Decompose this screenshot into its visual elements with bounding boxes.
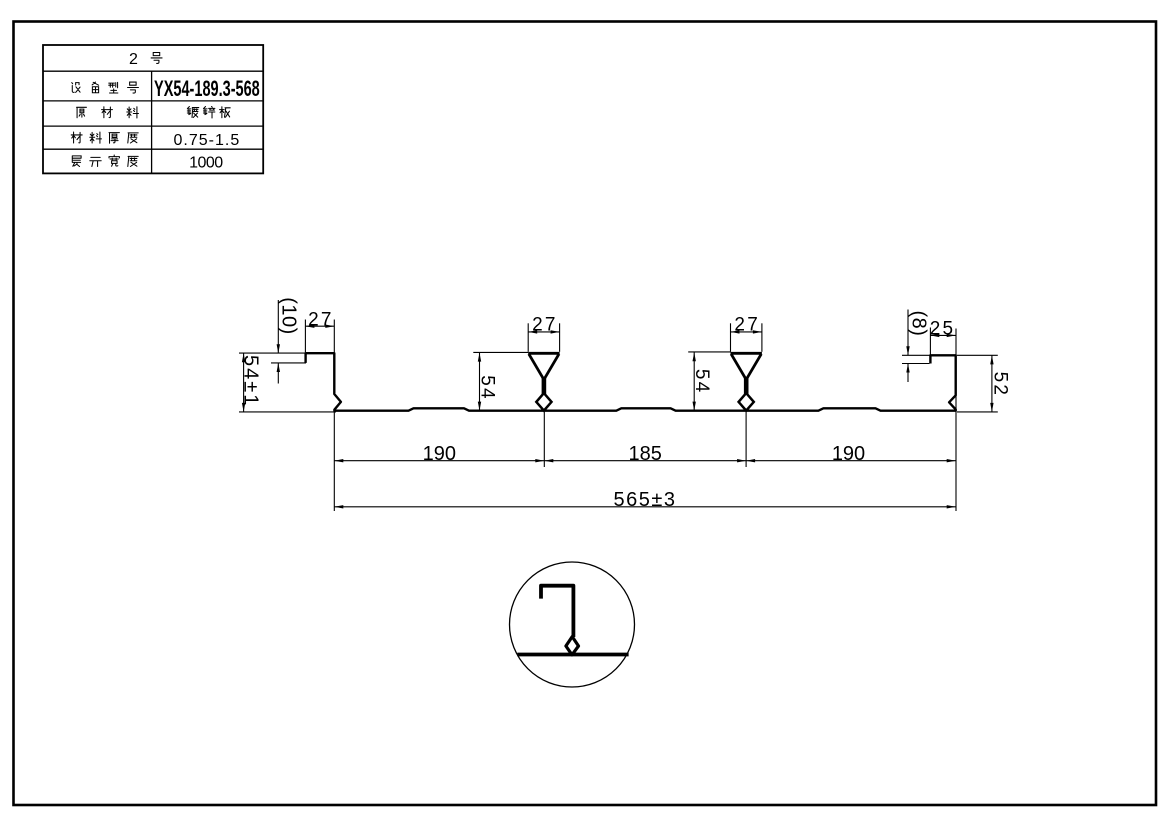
svg-text:27: 27 — [308, 309, 334, 330]
svg-text:2: 2 — [129, 51, 138, 68]
svg-text:25: 25 — [930, 318, 956, 339]
svg-text:27: 27 — [734, 315, 760, 336]
svg-text:565±3: 565±3 — [614, 489, 677, 511]
svg-text:190: 190 — [423, 443, 456, 465]
svg-text:YX54-189.3-568: YX54-189.3-568 — [154, 76, 260, 101]
svg-text:54±1: 54±1 — [240, 355, 262, 407]
svg-text:(8): (8) — [907, 311, 929, 337]
svg-text:27: 27 — [532, 315, 558, 336]
svg-text:(10): (10) — [277, 297, 299, 335]
svg-text:52: 52 — [990, 372, 1011, 398]
svg-text:54: 54 — [691, 369, 712, 395]
svg-text:185: 185 — [629, 443, 662, 465]
svg-text:0.75-1.5: 0.75-1.5 — [174, 132, 241, 149]
svg-text:1000: 1000 — [189, 155, 223, 172]
svg-text:190: 190 — [832, 443, 865, 465]
svg-text:54: 54 — [476, 375, 497, 401]
